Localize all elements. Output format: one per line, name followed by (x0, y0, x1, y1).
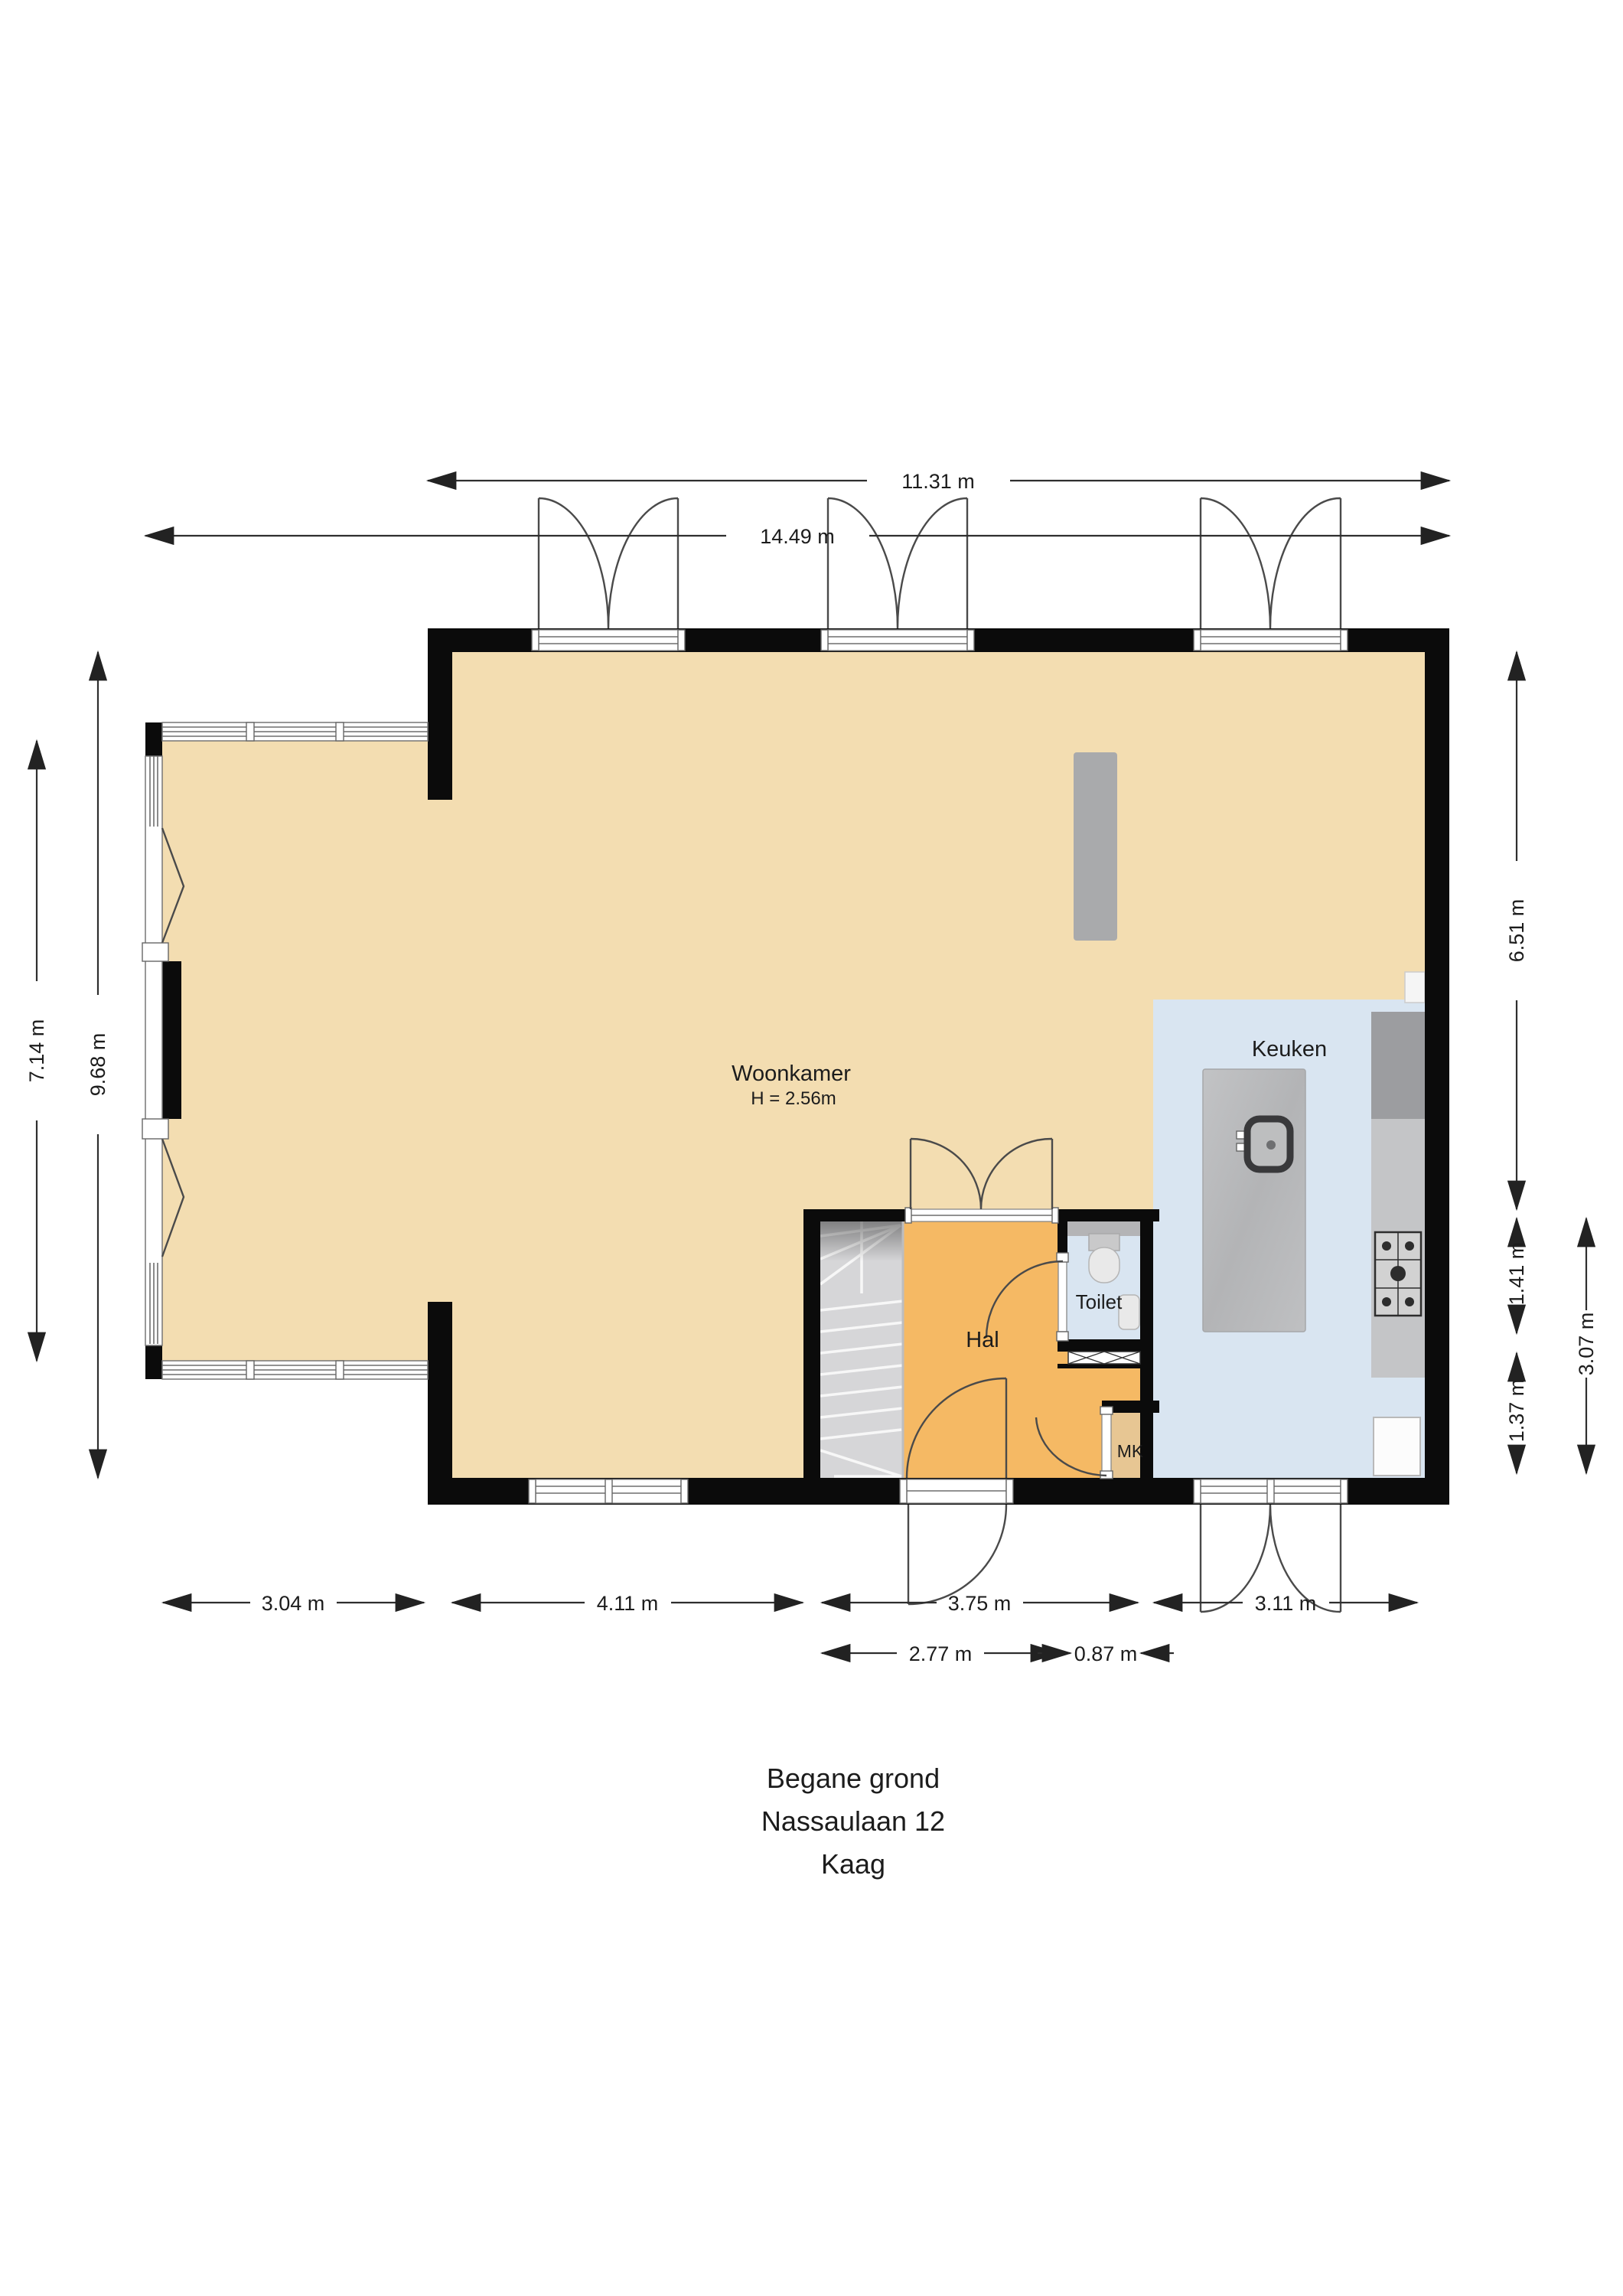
toilet-icon (1089, 1234, 1119, 1283)
wall-stairs-left (803, 1209, 820, 1478)
wall-niche (1405, 972, 1425, 1003)
wall-toilet-bottom (1058, 1339, 1149, 1352)
bottom-window (529, 1479, 688, 1503)
dim-bottom-mk: 0.87 m (1038, 1642, 1174, 1665)
wing-corner-top-cap (145, 722, 162, 756)
dim-bottom-living: 4.11 m (452, 1592, 803, 1615)
wing-corner-bottom-cap (145, 1345, 162, 1379)
dim-right-lower-total: 3.07 m (1575, 1218, 1598, 1473)
dim-bottom-kitchen: 3.11 m (1154, 1592, 1417, 1615)
kitchen-island (1203, 1069, 1305, 1332)
meter-closet-label: MK (1117, 1441, 1144, 1461)
dim-right-lower: 1.37 m (1505, 1353, 1528, 1473)
svg-text:1.37 m: 1.37 m (1505, 1379, 1528, 1443)
wing-left-wall (145, 756, 162, 1345)
dim-top-main: 11.31 m (428, 470, 1449, 493)
wall-hall-top-left (803, 1209, 911, 1221)
vent-grille-icon (1068, 1352, 1140, 1364)
french-door-2 (821, 498, 974, 651)
svg-text:3.75 m: 3.75 m (948, 1592, 1012, 1615)
kitchen-appliance (1374, 1417, 1420, 1476)
living-room-label: Woonkamer (732, 1062, 851, 1086)
dim-right-middle: 1.41 m (1505, 1218, 1528, 1333)
winder-staircase-icon (820, 1221, 903, 1478)
dim-bottom-hall: 3.75 m (822, 1592, 1138, 1615)
wall-left-lower-stub (428, 1302, 452, 1478)
svg-text:6.51 m: 6.51 m (1505, 899, 1528, 963)
title-street: Nassaulaan 12 (761, 1805, 945, 1837)
title-block: Begane grond Nassaulaan 12 Kaag (761, 1763, 945, 1880)
wall-hall-top-right (1052, 1209, 1159, 1221)
wing-top-window-mullion (246, 722, 254, 741)
title-city: Kaag (821, 1848, 885, 1880)
wing-bottom-window-mullion (246, 1361, 254, 1379)
svg-text:3.04 m: 3.04 m (262, 1592, 325, 1615)
svg-text:3.07 m: 3.07 m (1575, 1313, 1598, 1376)
svg-text:7.14 m: 7.14 m (25, 1019, 48, 1083)
french-doors-top (532, 498, 1348, 651)
wall-right (1425, 628, 1449, 1505)
kitchen-sink-icon (1237, 1119, 1290, 1169)
wing-sill-lower (142, 1119, 168, 1139)
living-room-column-bar (1074, 752, 1117, 941)
svg-text:3.11 m: 3.11 m (1255, 1592, 1317, 1615)
dim-left-total: 9.68 m (86, 652, 109, 1478)
hall-label: Hal (966, 1328, 999, 1352)
svg-text:9.68 m: 9.68 m (86, 1033, 109, 1097)
french-door-3 (1194, 498, 1348, 651)
title-floor: Begane grond (767, 1763, 940, 1794)
gas-hob-icon (1375, 1232, 1421, 1316)
kitchen-label: Keuken (1252, 1037, 1327, 1062)
dim-bottom-hall-inner: 2.77 m (822, 1642, 1059, 1665)
svg-text:14.49 m: 14.49 m (760, 525, 835, 548)
svg-text:1.41 m: 1.41 m (1505, 1242, 1528, 1306)
svg-text:4.11 m: 4.11 m (597, 1592, 659, 1615)
svg-text:2.77 m: 2.77 m (909, 1642, 973, 1665)
stair-top-shadow (820, 1221, 903, 1261)
svg-text:11.31 m: 11.31 m (901, 470, 975, 493)
front-door-swing-outside (908, 1505, 1006, 1604)
bay-wing-floor (162, 741, 452, 1361)
dim-right-upper: 6.51 m (1505, 652, 1528, 1209)
wing-top-window-mullion-2 (336, 722, 344, 741)
dim-bottom-wing: 3.04 m (163, 1592, 424, 1615)
toilet-label: Toilet (1076, 1290, 1123, 1313)
floorplan-sheet: Woonkamer H = 2.56m Keuken Toilet Hal MK… (0, 0, 1623, 2296)
wing-sill-upper (142, 943, 168, 961)
wall-left-upper-stub (428, 652, 452, 800)
kitchen-tall-cabinet (1371, 1012, 1425, 1119)
living-room-height-note: H = 2.56m (751, 1088, 836, 1109)
floorplan-drawing: Woonkamer H = 2.56m Keuken Toilet Hal MK… (0, 0, 1623, 2296)
dim-left-wing: 7.14 m (25, 741, 48, 1361)
wall-toilet-bottom-lip (1058, 1364, 1149, 1368)
svg-text:0.87 m: 0.87 m (1074, 1642, 1138, 1665)
wing-bottom-window-mullion-2 (336, 1361, 344, 1379)
french-door-1 (532, 498, 685, 651)
